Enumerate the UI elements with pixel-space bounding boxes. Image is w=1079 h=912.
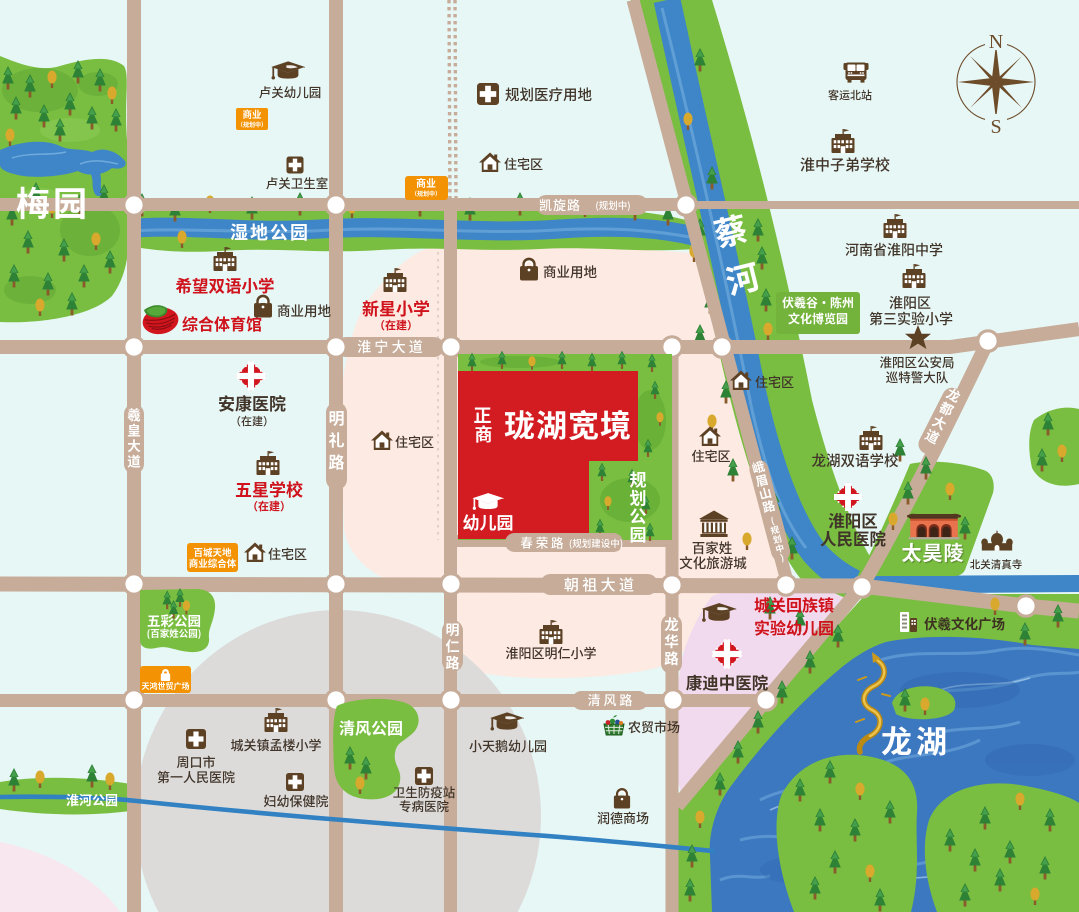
svg-text:妇幼保健院: 妇幼保健院 <box>263 791 328 810</box>
svg-text:湿地公园: 湿地公园 <box>230 219 310 245</box>
svg-text:天鸿世贸广场: 天鸿世贸广场 <box>142 681 190 692</box>
svg-text:伏羲谷·陈州: 伏羲谷·陈州 <box>782 294 854 311</box>
svg-text:商业: 商业 <box>416 175 436 190</box>
svg-text:康迪中医院: 康迪中医院 <box>686 670 769 694</box>
svg-text:润德商场: 润德商场 <box>597 808 649 827</box>
svg-text:商: 商 <box>475 421 493 447</box>
svg-text:巡特警大队: 巡特警大队 <box>886 367 949 386</box>
svg-text:春 荣 路: 春 荣 路 <box>520 533 564 552</box>
svg-text:梅园: 梅园 <box>16 177 90 226</box>
svg-text:礼: 礼 <box>328 427 344 451</box>
svg-text:小天鹅幼儿园: 小天鹅幼儿园 <box>469 736 547 755</box>
svg-text:（在建）: （在建） <box>230 413 274 429</box>
svg-text:S: S <box>990 116 1001 138</box>
svg-text:淮 宁 大 道: 淮 宁 大 道 <box>357 337 422 357</box>
svg-text:N: N <box>989 31 1003 53</box>
svg-text:朝 祖 大 道: 朝 祖 大 道 <box>564 574 634 595</box>
svg-text:伏羲文化广场: 伏羲文化广场 <box>924 613 1005 633</box>
svg-text:商业用地: 商业用地 <box>277 300 331 320</box>
svg-text:希望双语小学: 希望双语小学 <box>176 273 275 297</box>
svg-text:文化旅游城: 文化旅游城 <box>679 552 747 572</box>
svg-text:第三实验小学: 第三实验小学 <box>869 309 953 329</box>
svg-text:淮中子弟学校: 淮中子弟学校 <box>800 154 890 175</box>
svg-text:卢关幼儿园: 卢关幼儿园 <box>259 82 322 101</box>
svg-text:商业: 商业 <box>242 107 262 121</box>
svg-text:商业用地: 商业用地 <box>543 261 597 281</box>
svg-text:住宅区: 住宅区 <box>691 446 730 465</box>
svg-text:实验幼儿园: 实验幼儿园 <box>754 615 834 639</box>
svg-text:住宅区: 住宅区 <box>395 432 434 451</box>
svg-text:住宅区: 住宅区 <box>504 154 543 173</box>
svg-text:商业综合体: 商业综合体 <box>189 556 237 570</box>
svg-text:凯旋路: 凯旋路 <box>539 195 581 214</box>
svg-text:专病医院: 专病医院 <box>399 796 450 815</box>
svg-text:第一人民医院: 第一人民医院 <box>157 767 235 786</box>
svg-text:城关镇孟楼小学: 城关镇孟楼小学 <box>230 735 321 754</box>
svg-text:(规划中): (规划中) <box>595 198 630 212</box>
svg-text:人民医院: 人民医院 <box>820 526 887 550</box>
svg-text:园: 园 <box>630 521 647 546</box>
svg-text:幼儿园: 幼儿园 <box>463 509 514 534</box>
svg-text:（在建）: （在建） <box>247 498 291 514</box>
svg-text:农贸市场: 农贸市场 <box>628 717 680 736</box>
svg-text:龙湖: 龙湖 <box>881 717 951 762</box>
svg-text:规划医疗用地: 规划医疗用地 <box>505 84 592 105</box>
svg-text:(规划建设中): (规划建设中) <box>569 536 623 550</box>
svg-text:卢关卫生室: 卢关卫生室 <box>266 173 329 192</box>
svg-text:文化博览园: 文化博览园 <box>788 310 848 327</box>
svg-text:（规划中）: （规划中） <box>411 189 441 198</box>
svg-text:珑湖宽境: 珑湖宽境 <box>504 401 632 446</box>
svg-text:明: 明 <box>328 405 344 429</box>
svg-text:清风公园: 清风公园 <box>339 715 403 739</box>
svg-text:道: 道 <box>127 451 141 471</box>
svg-text:客运北站: 客运北站 <box>828 87 872 103</box>
svg-text:城关回族镇: 城关回族镇 <box>754 592 834 616</box>
svg-text:(百家姓公园): (百家姓公园) <box>147 626 202 640</box>
svg-text:路: 路 <box>664 648 679 669</box>
svg-text:住宅区: 住宅区 <box>755 372 794 391</box>
svg-text:安康医院: 安康医院 <box>218 390 286 415</box>
svg-text:淮阳区明仁小学: 淮阳区明仁小学 <box>505 643 596 662</box>
svg-text:淮河公园: 淮河公园 <box>66 790 118 809</box>
svg-text:（规划中）: （规划中） <box>237 120 267 129</box>
svg-text:河南省淮阳中学: 河南省淮阳中学 <box>845 240 943 260</box>
svg-text:路: 路 <box>328 449 344 473</box>
svg-text:（在建）: （在建） <box>374 317 418 333</box>
svg-text:清 风 路: 清 风 路 <box>588 690 633 709</box>
svg-text:住宅区: 住宅区 <box>268 544 307 563</box>
svg-text:综合体育馆: 综合体育馆 <box>182 311 262 335</box>
svg-text:路: 路 <box>446 653 460 673</box>
svg-text:北关清真寺: 北关清真寺 <box>970 557 1023 572</box>
svg-text:龙湖双语学校: 龙湖双语学校 <box>812 450 899 471</box>
svg-text:太昊陵: 太昊陵 <box>902 537 965 566</box>
